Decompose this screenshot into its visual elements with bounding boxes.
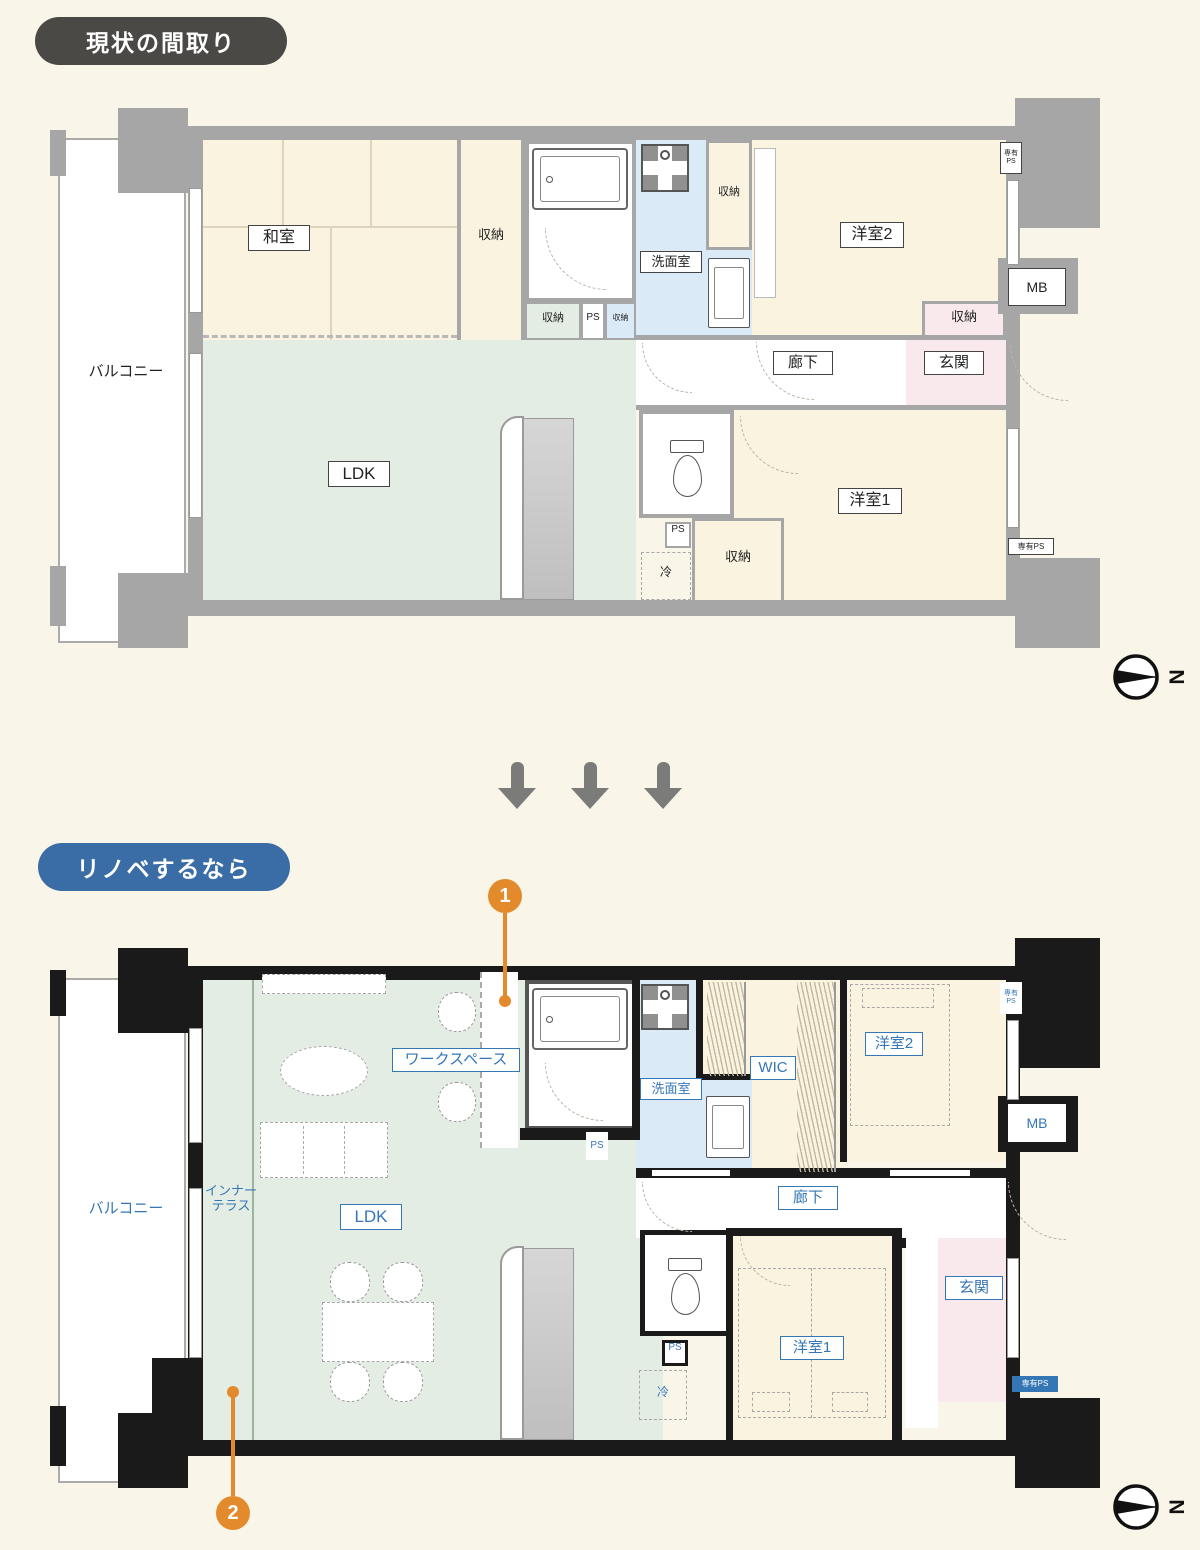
window [1007,428,1019,528]
workspace-label: ワークスペース [392,1048,520,1072]
column [1015,558,1100,648]
sliding-door [890,1170,970,1176]
window [1007,1258,1019,1358]
inner-terrace-label: インナーテラス [196,1184,266,1214]
marker-1-dot [499,995,511,1007]
balcony-label: バルコニー [80,1200,172,1217]
washroom-label: 洗面室 [640,1078,702,1100]
bathtub [532,148,628,210]
window [1007,1020,1019,1100]
toilet [668,1258,702,1271]
marker-2-line [231,1396,235,1496]
down-arrow-icon [570,762,610,810]
storage-label: 収納 [706,186,752,199]
washitsu-label: 和室 [248,225,310,251]
ps-label: PS [581,312,605,324]
western2-label: 洋室2 [840,222,904,248]
column [50,1406,66,1466]
western1-label: 洋室1 [838,488,902,514]
current-plan-badge-label: 現状の間取り [86,24,236,58]
vanity-sink [708,258,750,328]
storage-label: 収納 [922,310,1006,325]
marker-1-line [503,913,507,999]
entrance-closet [905,1238,938,1428]
wall-segment [632,980,640,1140]
private-ps-label: 専有PS [1000,982,1022,1014]
current-plan-badge: 現状の間取り [35,17,287,65]
sliding-door [652,1170,730,1176]
storage-label: 収納 [692,550,784,565]
marker-2: 2 [216,1496,250,1530]
ps-label: PS [662,1342,688,1354]
toilet [671,1273,700,1315]
western1-label: 洋室1 [780,1336,844,1360]
wall-segment [892,1228,902,1440]
washroom-label: 洗面室 [640,251,702,273]
pillow [862,988,934,1008]
storage-label: 収納 [457,228,525,243]
wall-segment [696,980,703,1080]
reno-floor-plan: MB 専有PS 専有PS バルコニー インナーテラス LDK ワークスペース 洗… [40,928,1100,1508]
wall-segment [726,1228,902,1236]
pillow [752,1392,790,1412]
toilet [673,455,702,497]
compass-n-label: N [1164,1499,1188,1514]
chair [438,1082,476,1122]
window [189,188,202,313]
dining-table [322,1302,434,1362]
chair [438,992,476,1032]
pillow [832,1392,868,1412]
column [118,573,188,648]
ps-label: PS [586,1132,608,1160]
wall-segment [840,980,847,1162]
current-floor-plan: MB 専有PS 専有PS バルコニー 和室 収納 収納 PS 収納 洗面室 収納… [40,88,1100,668]
mb-label: MB [1008,268,1066,306]
sliding-door-line [203,335,457,338]
storage-label: 収納 [525,312,581,325]
table-oval [280,1046,368,1096]
fridge-label: 冷 [639,1386,687,1400]
private-ps-label: 専有PS [1012,1376,1058,1392]
compass-north: N [1112,650,1183,704]
marker-1: 1 [488,879,522,913]
kitchen-unit [522,418,574,600]
hallway-label: 廊下 [773,351,833,375]
wall-outer [188,1440,1020,1456]
wall-outer [188,600,1020,616]
toilet [670,440,704,453]
chair [383,1262,423,1302]
western2-label: 洋室2 [865,1032,923,1056]
mb-label: MB [1008,1104,1066,1142]
tatami-line [282,140,284,226]
vanity-sink [706,1096,750,1158]
tatami-line [330,226,332,340]
reno-plan-badge: リノベするなら [38,843,290,891]
page: 現状の間取り [0,0,1200,1550]
closet-doors [754,148,776,298]
window [189,1028,202,1143]
sofa [260,1122,388,1178]
kitchen-unit [522,1248,574,1440]
wall-segment [726,1228,733,1440]
fridge-label: 冷 [641,566,691,580]
wic-hanger-strip [707,982,745,1076]
column [50,130,66,176]
private-ps-label: 専有PS [1000,142,1022,174]
window [189,353,202,518]
entrance-label: 玄関 [945,1276,1003,1300]
bathtub [532,988,628,1050]
ps-label: PS [665,524,691,536]
compass-icon [1112,650,1166,704]
tatami-line [370,140,372,226]
ldk-label: LDK [340,1204,402,1230]
compass-north: N [1112,1480,1183,1534]
column [50,566,66,626]
wic-label: WIC [750,1056,796,1080]
column [1015,1398,1100,1488]
room-entrance [938,1238,1006,1402]
kitchen-counter [500,1246,524,1440]
ldk-label: LDK [328,461,390,487]
balcony-area [58,138,186,643]
compass-n-label: N [1164,669,1188,684]
column [1015,938,1100,1068]
washing-machine [641,144,689,192]
wic-pole [744,982,746,1076]
storage-label: 収納 [605,313,636,322]
down-arrow-icon [497,762,537,810]
column [50,970,66,1016]
washing-machine [641,984,689,1030]
wall-outer [188,126,1020,140]
window [1007,180,1019,265]
down-arrow-icon [643,762,683,810]
wall-segment [520,1128,640,1140]
chair [330,1362,370,1402]
column [1015,98,1100,228]
hallway-label: 廊下 [778,1186,838,1210]
entrance-label: 玄関 [924,351,984,375]
wall-segment [636,335,1006,340]
column [118,948,188,1033]
compass-icon [1112,1480,1166,1534]
private-ps-label: 専有PS [1008,538,1054,555]
chair [383,1362,423,1402]
reno-plan-badge-label: リノベするなら [77,850,252,884]
wic-pole [834,982,836,1172]
column [118,108,188,193]
wic-hanger-strip [797,982,835,1172]
chair [330,1262,370,1302]
kitchen-counter [500,416,524,600]
balcony-label: バルコニー [80,363,172,380]
tv-board [262,974,386,994]
